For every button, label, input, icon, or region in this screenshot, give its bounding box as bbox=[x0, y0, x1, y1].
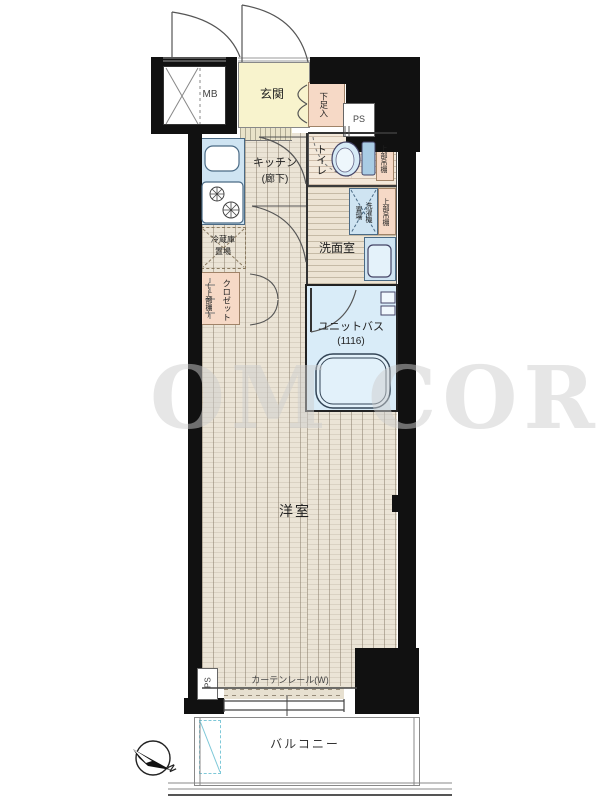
room-floor-right bbox=[307, 412, 397, 650]
kitchen-counter bbox=[197, 138, 245, 225]
main-room-label: 洋室 bbox=[265, 503, 325, 519]
toilet-label: トイレ bbox=[315, 137, 327, 183]
compass-north-label: N bbox=[163, 760, 179, 778]
wall-right-column bbox=[398, 130, 416, 650]
vanity-box bbox=[364, 237, 396, 281]
shelf-laundry-label: 上部吊棚 bbox=[381, 191, 389, 233]
wall-bottom-left-block bbox=[184, 698, 224, 714]
laundry-label-1: 洗濯機 bbox=[364, 192, 372, 232]
ps-top-label: PS bbox=[345, 114, 373, 124]
closet-label: クロゼット bbox=[221, 276, 231, 324]
curtain-box-band bbox=[224, 686, 344, 699]
fridge-label-2: 置場 bbox=[199, 247, 247, 256]
mb-label: MB bbox=[196, 89, 224, 101]
shelf-toilet-label: 上部吊棚 bbox=[379, 139, 387, 179]
closet-shelf-label: (上部棚) bbox=[204, 281, 212, 319]
genkan-label: 玄関 bbox=[246, 88, 298, 102]
wall-bottom-right-block bbox=[355, 648, 419, 714]
curtain-rail-label: カーテンレール(W) bbox=[238, 675, 342, 685]
shoe-cabinet-label: 下足入 bbox=[318, 86, 328, 124]
washroom-label: 洗面室 bbox=[308, 242, 366, 256]
wall-right-notch bbox=[392, 495, 400, 512]
corridor-floor bbox=[245, 133, 307, 688]
ps-bottom-label: PS bbox=[203, 671, 212, 695]
unit-bath-label: ユニットバス bbox=[310, 321, 392, 334]
balcony-label: バルコニー bbox=[260, 738, 350, 752]
wall-left-column bbox=[188, 130, 202, 700]
fridge-label-1: 冷蔵庫 bbox=[199, 235, 247, 244]
kitchen-label-2: (廊下) bbox=[244, 174, 306, 186]
evacuation-hatch bbox=[199, 720, 221, 774]
kitchen-label-1: キッチン bbox=[244, 157, 306, 170]
unit-bath-room bbox=[305, 284, 398, 412]
genkan-step bbox=[240, 128, 292, 141]
laundry-label-2: 置場 bbox=[354, 198, 362, 228]
unit-bath-size-label: (1116) bbox=[310, 336, 392, 348]
floor-plan: MB 玄関 下足入 PS トイレ 上部吊棚 上部吊棚 洗濯機 置場 キッチン (… bbox=[0, 0, 600, 800]
